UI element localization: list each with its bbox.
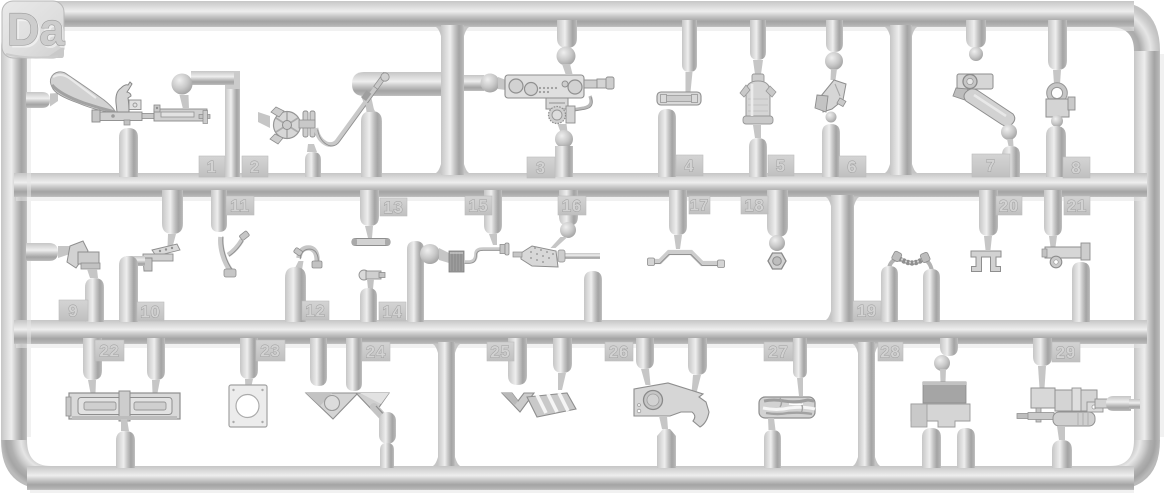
svg-text:2: 2 xyxy=(250,158,260,176)
svg-text:Da: Da xyxy=(7,4,65,55)
svg-text:28: 28 xyxy=(880,343,900,361)
svg-text:19: 19 xyxy=(857,302,877,320)
svg-text:11: 11 xyxy=(230,197,249,215)
svg-text:14: 14 xyxy=(382,303,402,321)
svg-text:21: 21 xyxy=(1067,197,1087,215)
svg-text:24: 24 xyxy=(366,343,386,361)
svg-text:27: 27 xyxy=(768,343,788,361)
svg-text:1: 1 xyxy=(207,158,217,176)
svg-text:10: 10 xyxy=(140,303,160,321)
svg-text:9: 9 xyxy=(68,302,78,320)
svg-text:12: 12 xyxy=(305,302,325,320)
svg-text:18: 18 xyxy=(744,197,764,215)
svg-text:22: 22 xyxy=(99,342,119,360)
svg-text:20: 20 xyxy=(999,197,1019,215)
svg-text:4: 4 xyxy=(684,157,694,175)
svg-text:8: 8 xyxy=(1071,159,1081,177)
svg-text:3: 3 xyxy=(536,159,546,177)
svg-text:7: 7 xyxy=(986,157,996,176)
svg-text:5: 5 xyxy=(776,157,786,175)
svg-text:16: 16 xyxy=(562,197,582,215)
svg-text:17: 17 xyxy=(690,198,709,215)
svg-text:26: 26 xyxy=(609,343,629,361)
svg-text:29: 29 xyxy=(1056,344,1076,362)
svg-text:6: 6 xyxy=(847,158,857,176)
svg-text:13: 13 xyxy=(383,199,403,217)
svg-text:15: 15 xyxy=(468,197,488,215)
svg-text:23: 23 xyxy=(260,342,280,360)
svg-text:25: 25 xyxy=(490,343,510,361)
